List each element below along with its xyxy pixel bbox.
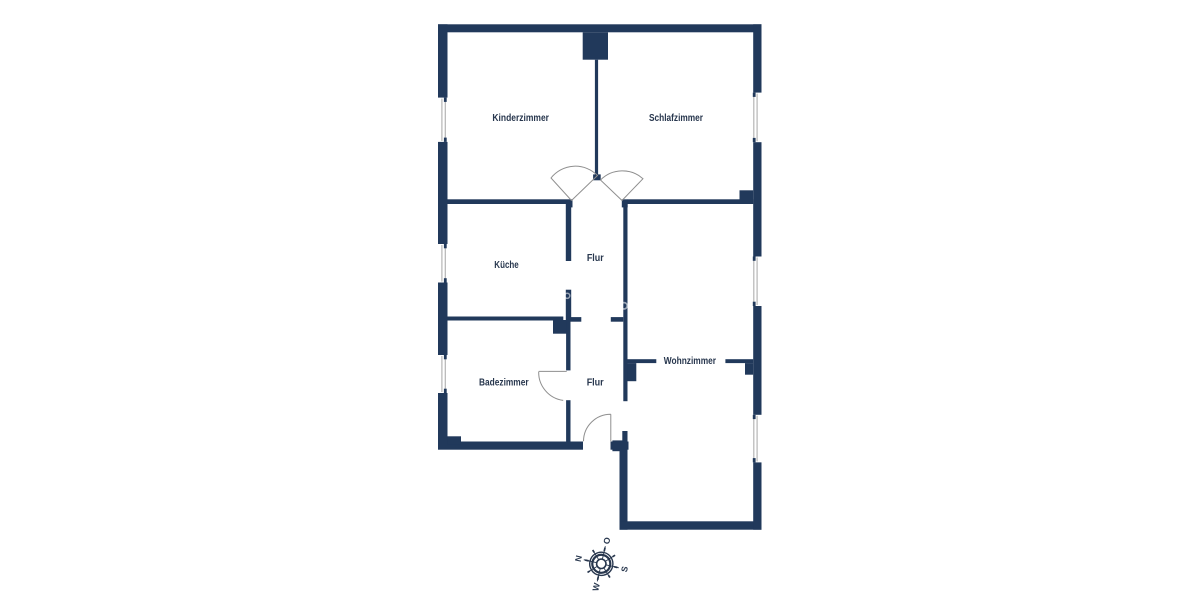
svg-text:Wohnzimmer: Wohnzimmer [664,356,716,367]
svg-text:O: O [601,536,612,545]
svg-text:Flur: Flur [587,253,604,264]
svg-text:Flur: Flur [587,377,604,388]
svg-text:Badezimmer: Badezimmer [479,377,529,388]
svg-text:N: N [573,554,584,562]
svg-text:Küche: Küche [494,260,519,271]
svg-text:W: W [590,581,602,592]
svg-text:S: S [619,565,630,573]
svg-text:Kinderzimmer: Kinderzimmer [492,113,549,124]
svg-text:Schlafzimmer: Schlafzimmer [649,113,703,124]
